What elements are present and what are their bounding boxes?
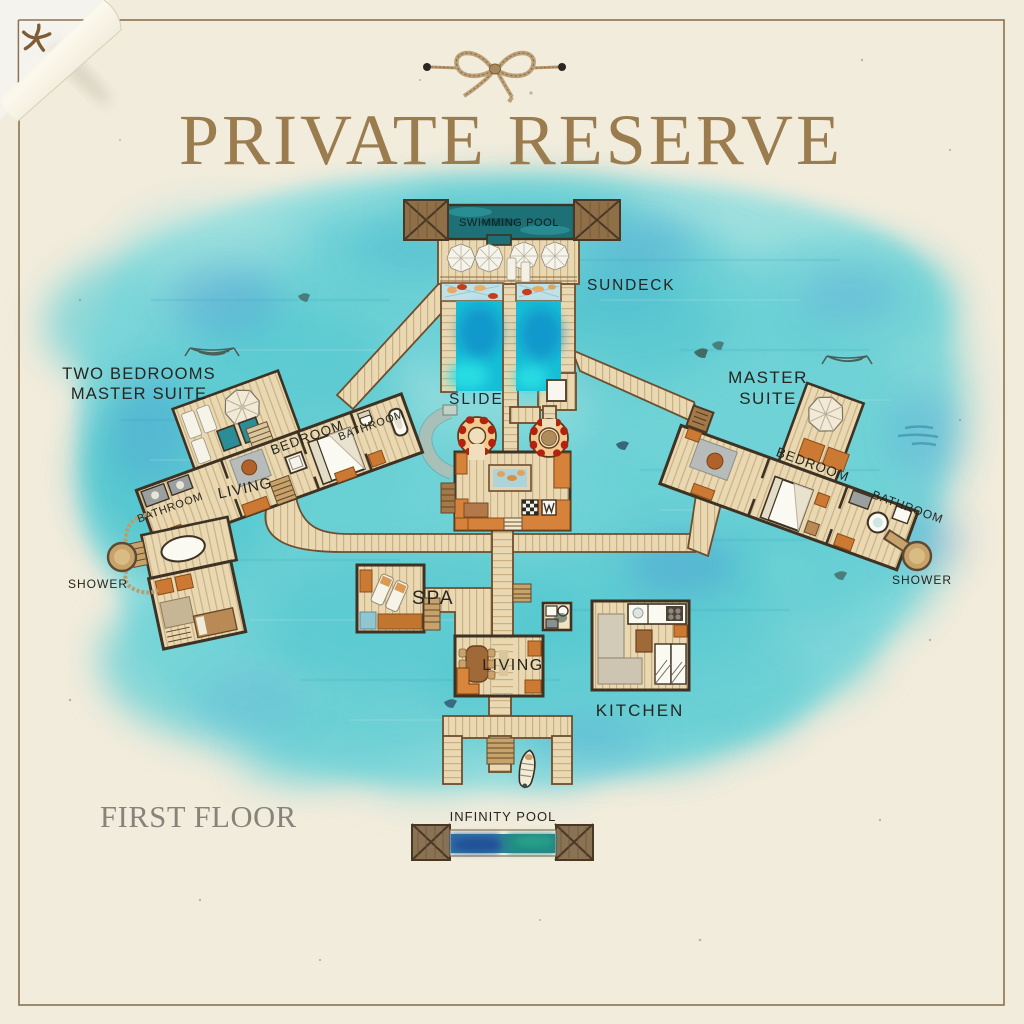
svg-text:SHOWER: SHOWER	[68, 577, 128, 591]
svg-text:SUITE: SUITE	[739, 389, 797, 408]
svg-text:SWIMMING POOL: SWIMMING POOL	[459, 217, 559, 229]
svg-text:KITCHEN: KITCHEN	[596, 701, 685, 720]
svg-text:SUNDECK: SUNDECK	[587, 277, 675, 294]
svg-text:TWO BEDROOMS: TWO BEDROOMS	[62, 365, 216, 383]
svg-text:MASTER SUITE: MASTER SUITE	[71, 385, 207, 403]
svg-text:PRIVATE RESERVE: PRIVATE RESERVE	[179, 100, 843, 180]
svg-text:LIVING: LIVING	[482, 657, 543, 674]
svg-text:SLIDE: SLIDE	[449, 391, 504, 408]
svg-text:SHOWER: SHOWER	[892, 573, 952, 587]
svg-text:MASTER: MASTER	[728, 368, 808, 387]
svg-text:SPA: SPA	[412, 588, 455, 609]
svg-text:INFINITY POOL: INFINITY POOL	[450, 809, 557, 824]
svg-text:FIRST FLOOR: FIRST FLOOR	[100, 800, 297, 834]
